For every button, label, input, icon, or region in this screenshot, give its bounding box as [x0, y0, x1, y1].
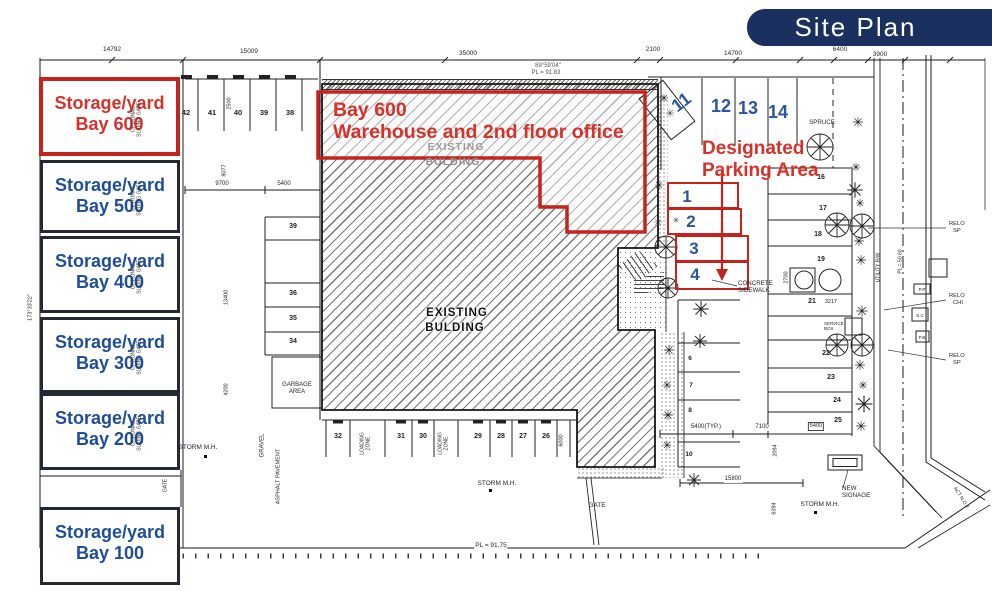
asphalt-pavement-label: ASPHALT PAVEMENT [276, 437, 283, 517]
dim-7100: 7100 [754, 424, 769, 431]
loading-line2: ZONE [444, 427, 450, 461]
dim-2094: 2094 [773, 439, 780, 463]
concrete-line2: SIDEWALK [738, 287, 773, 294]
bay-100-box: Storage/yard Bay 100 [40, 507, 180, 585]
bay-100-label-line1: Storage/yard [43, 522, 177, 543]
pp-label: P.P [919, 286, 926, 293]
designated-line2: Parking Area [702, 160, 819, 182]
dim-4200: 4200 [224, 378, 231, 402]
stall-41: 41 [208, 108, 216, 117]
new-signage-line1: NEW [842, 485, 870, 492]
red-arrow-head [716, 269, 728, 281]
new-signage-label: NEW SIGNAGE [842, 485, 870, 499]
gate-lines [586, 478, 599, 545]
stall-27: 27 [519, 433, 527, 440]
stall-25: 25 [834, 417, 842, 424]
stall-1: 1 [682, 187, 691, 207]
pb-label: P.B [919, 334, 926, 341]
stall-21: 21 [808, 298, 816, 305]
bay600-overlay-title: Bay 600 Warehouse and 2nd floor office [333, 99, 624, 143]
dim-8077: 8077 [222, 159, 229, 183]
stall-4: 4 [690, 265, 699, 285]
existing-label: EXISTING [426, 310, 488, 317]
sliding-gate-text: SLIDING GATE [136, 340, 142, 375]
stall-30: 30 [419, 433, 427, 440]
existing-label-faded: EXISTING [427, 144, 484, 151]
service-box-label: SERVICE BOX [824, 321, 844, 331]
dim-2700: 2700 [784, 266, 791, 290]
bay-400-label-line1: Storage/yard [43, 251, 177, 272]
landscape-strip-south [577, 467, 665, 478]
storm-mh-right: STORM M.H. [801, 501, 840, 508]
dim-6400: 6400 [832, 46, 848, 53]
new-signage-line2: SIGNAGE [842, 492, 870, 499]
site-plan-canvas: Storage/yard Bay 600 OPTIONALSLIDING GAT… [0, 0, 992, 591]
designated-parking-title: Designated Parking Area [702, 138, 819, 181]
page-title: Site Plan [794, 12, 916, 43]
relo-sp-label-1: RELO SP [949, 221, 965, 234]
stall-12: 12 [711, 96, 731, 117]
stall-40: 40 [234, 108, 242, 117]
garbage-line2: AREA [282, 389, 312, 396]
stall-22: 22 [822, 350, 830, 357]
bay-600-label-line1: Storage/yard [43, 93, 176, 114]
bay-500-label-line1: Storage/yard [43, 175, 177, 196]
stall-28: 28 [497, 433, 505, 440]
dim-15800: 15800 [724, 476, 743, 483]
bay-400-box: Storage/yard Bay 400 OPTIONALSLIDING GAT… [40, 236, 180, 313]
garbage-area-label: GARBAGE AREA [281, 382, 313, 396]
gravel-label: GRAVEL [260, 429, 267, 463]
bay-200-box: Storage/yard Bay 200 OPTIONALSLIDING GAT… [40, 393, 180, 470]
loading-line2: ZONE [366, 427, 372, 461]
stall-24: 24 [833, 397, 841, 404]
bay-500-label-line2: Bay 500 [43, 196, 177, 217]
dim-3217: 3217 [825, 299, 837, 306]
stall-2: 2 [686, 212, 695, 232]
relo-text: RELO [949, 353, 965, 360]
stall-14: 14 [768, 102, 788, 123]
dim-5400-boxed: 5400 [808, 422, 824, 431]
stall-8: 8 [688, 407, 692, 414]
sliding-gate-text: SLIDING GATE [136, 416, 142, 451]
bay-300-label-line1: Storage/yard [43, 332, 177, 353]
relo-chi-label: RELO CHI [949, 293, 965, 306]
bearing-top: 89°59'04" [535, 63, 561, 70]
service-line2: BOX [824, 326, 844, 331]
dim-14792: 14792 [102, 46, 122, 53]
dim-14700: 14700 [723, 50, 743, 57]
pl-bottom: PL = 91.75 [474, 542, 507, 549]
dim-15009: 15009 [239, 48, 259, 55]
dim-3900: 3900 [872, 51, 888, 58]
dim-6000: 6000 [559, 429, 566, 453]
stall-11: 11 [668, 88, 696, 116]
relo-sp-label-2: RELO SP [949, 353, 965, 366]
stall-23: 23 [827, 374, 835, 381]
bay-200-label-line2: Bay 200 [43, 429, 177, 450]
sp-text: SP [949, 228, 965, 235]
stall-35: 35 [289, 315, 297, 322]
pl-top: PL = 91.83 [532, 70, 561, 77]
bay-100-label-line2: Bay 100 [43, 543, 177, 564]
landscape-strip-sidewalk [660, 332, 684, 478]
stall-36: 36 [289, 290, 297, 297]
bay-500-box: Storage/yard Bay 500 OPTIONALSLIDING GAT… [40, 160, 180, 233]
stall-31: 31 [397, 433, 405, 440]
stall-26: 26 [542, 433, 550, 440]
loading-zone-label-1: LOADING ZONE [361, 427, 372, 461]
gate-small-label: GATE [163, 473, 170, 499]
pl-left: 173°33'22" [28, 283, 35, 333]
stall-38: 38 [286, 108, 294, 117]
sc-label: S.C [916, 312, 924, 319]
building-label: BULDING [425, 325, 484, 332]
bay-400-label-line2: Bay 400 [43, 272, 177, 293]
road-lines [874, 55, 985, 520]
storm-mh-left: STORM M.H. [179, 444, 218, 451]
stall-18: 18 [814, 231, 822, 238]
stall-42: 42 [182, 108, 190, 117]
bay-200-label-line1: Storage/yard [43, 408, 177, 429]
bay-300-box: Storage/yard Bay 300 OPTIONALSLIDING GAT… [40, 317, 180, 393]
stall-39: 39 [260, 108, 268, 117]
designated-stall-outlines [668, 183, 748, 289]
dim-5400: 5400 [276, 181, 291, 188]
spruce-label: SPRUCE [809, 119, 835, 126]
dim-5400typ: 5400(TYP.) [690, 424, 722, 431]
leader-lines [712, 228, 946, 488]
sliding-gate-text: SLIDING GATE [136, 102, 142, 137]
concrete-line1: CONCRETE [738, 280, 773, 287]
relo-text: RELO [949, 293, 965, 300]
gate-label: GATE [588, 502, 605, 509]
utility-rw-label: UTILITY R/W [876, 243, 883, 293]
loading-zone-label-2: LOADING ZONE [439, 427, 450, 461]
sliding-gate-text: SLIDING GATE [136, 181, 142, 216]
building-label-faded: BULDING [426, 159, 481, 166]
stall-13: 13 [738, 98, 758, 119]
overlay-line1: Bay 600 [333, 99, 624, 121]
concrete-sidewalk-label: CONCRETE SIDEWALK [738, 280, 773, 294]
dim-6394: 6394 [772, 497, 779, 521]
bay-600-box: Storage/yard Bay 600 OPTIONALSLIDING GAT… [39, 77, 180, 156]
dim-13400: 13400 [224, 286, 231, 310]
stall-32: 32 [334, 433, 342, 440]
sliding-gate-text: SLIDING GATE [136, 259, 142, 294]
garbage-line1: GARBAGE [282, 382, 312, 389]
stall-29: 29 [474, 433, 482, 440]
stall-10: 10 [685, 451, 692, 458]
overlay-line2: Warehouse and 2nd floor office [333, 121, 624, 143]
dim-2100: 2100 [645, 46, 661, 53]
stall-19: 19 [817, 256, 825, 263]
storm-mh-center: STORM M.H. [478, 480, 517, 487]
building-north-wall [322, 79, 658, 90]
bay-600-label-line2: Bay 600 [43, 114, 176, 135]
stall-34: 34 [289, 338, 297, 345]
sp-text: SP [949, 360, 965, 367]
relo-text: RELO [949, 221, 965, 228]
pl-right: PL = 50.60 [898, 239, 905, 285]
dim-2500: 2500 [227, 92, 234, 116]
stall-3: 3 [689, 239, 698, 259]
stall-6: 6 [688, 355, 692, 362]
dim-35000: 35000 [458, 50, 478, 57]
stall-7: 7 [689, 382, 693, 389]
landscape-strip-east [658, 95, 668, 248]
chi-text: CHI [949, 300, 965, 307]
bay-300-label-line2: Bay 300 [43, 353, 177, 374]
designated-line1: Designated [702, 138, 819, 160]
stall-39b: 39 [289, 223, 297, 230]
stall-17: 17 [819, 205, 827, 212]
act-not-label: ACT N.O.T. [951, 486, 970, 511]
slide-title-banner: Site Plan [747, 9, 992, 46]
